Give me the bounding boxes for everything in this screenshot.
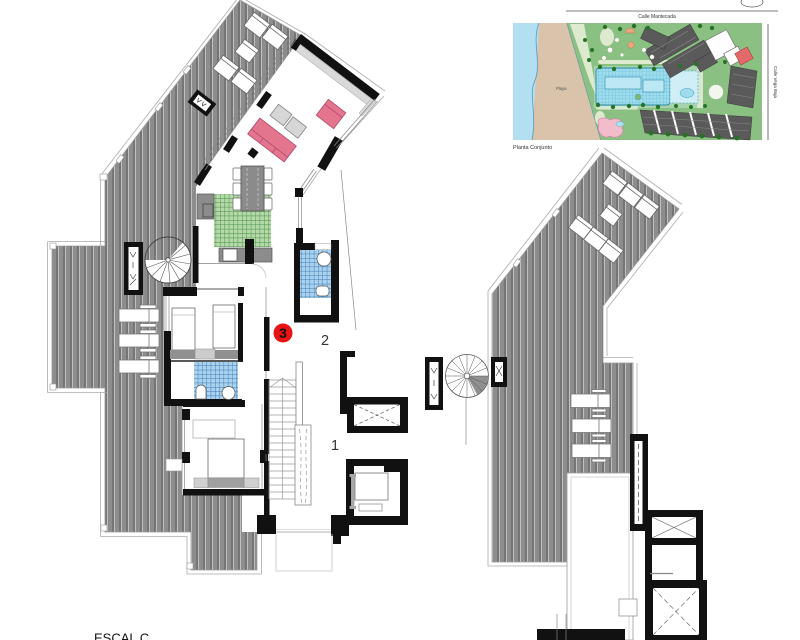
svg-text:Planta Conjunto: Planta Conjunto — [513, 145, 552, 151]
svg-text:Playa: Playa — [556, 86, 567, 91]
svg-text:Calle Vega Baja: Calle Vega Baja — [773, 66, 778, 99]
svg-text:ESCAL C: ESCAL C — [94, 631, 149, 640]
svg-text:3: 3 — [279, 325, 287, 341]
svg-text:2: 2 — [321, 333, 329, 349]
svg-text:Calle Mantecada: Calle Mantecada — [638, 14, 676, 20]
svg-text:1: 1 — [331, 438, 339, 454]
